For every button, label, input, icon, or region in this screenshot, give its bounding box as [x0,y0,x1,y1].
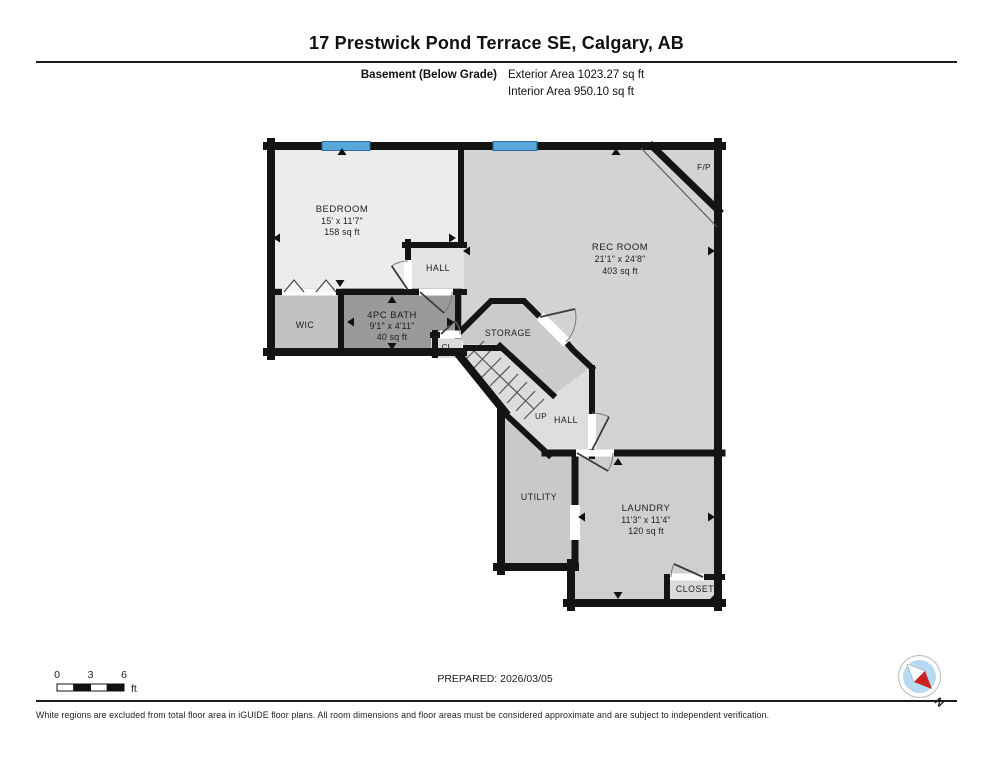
compass-north-label: N [932,696,946,710]
disclaimer-text: White regions are excluded from total fl… [36,710,966,720]
bath-label: 4PC BATH [367,310,417,321]
rec-room-dims: 21'1" x 24'8" [595,254,646,264]
closet-label: CLOSET [676,584,714,594]
hall-lower-label: HALL [554,415,578,425]
bedroom-window [322,142,370,151]
hall-upper-label: HALL [426,263,450,273]
prepared-date: PREPARED: 2026/03/05 [437,673,553,685]
laundry-label: LAUNDRY [622,503,671,514]
cl-label: CL [441,343,452,352]
floorplan-canvas: BEDROOM 15' x 11'7" 158 sq ft HALL WIC 4… [0,0,993,768]
bath-dims: 9'1" x 4'11" [369,321,414,331]
laundry-sqft: 120 sq ft [628,526,664,536]
bath-sqft: 40 sq ft [377,332,408,342]
rec-room-sqft: 403 sq ft [602,266,638,276]
bedroom-label: BEDROOM [316,204,369,215]
wic-label: WIC [296,320,315,330]
scale-6: 6 [121,669,127,681]
footer-divider [36,700,957,702]
bedroom-sqft: 158 sq ft [324,227,360,237]
utility-label: UTILITY [521,492,557,502]
scale-bar: 0 3 6 ft [54,669,137,695]
scale-0: 0 [54,669,60,681]
up-label: UP [535,412,547,421]
scale-3: 3 [88,669,94,681]
rec-room-window [493,142,537,151]
laundry-dims: 11'3" x 11'4" [621,515,671,525]
fireplace-label: F/P [697,163,711,172]
bedroom-dims: 15' x 11'7" [321,216,363,226]
rec-room-label: REC ROOM [592,242,648,253]
scale-unit: ft [131,683,137,695]
storage-label: STORAGE [485,328,531,338]
